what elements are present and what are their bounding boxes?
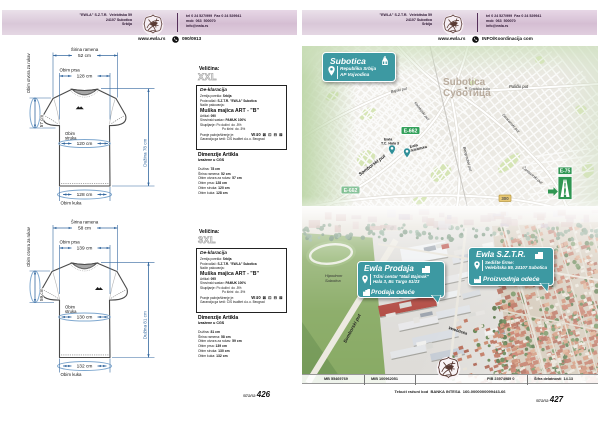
svg-text:Gradska kuća: Gradska kuća <box>469 87 490 91</box>
svg-text:E-662: E-662 <box>344 188 358 194</box>
svg-text:Kelebijski put: Kelebijski put <box>413 101 431 122</box>
svg-text:Palićki put: Palićki put <box>509 84 529 89</box>
svg-text:T.C. Hala 3: T.C. Hala 3 <box>381 142 399 146</box>
svg-text:Čantavirski put: Čantavirski put <box>521 165 544 186</box>
svg-text:Beogradski put: Beogradski put <box>462 146 473 172</box>
svg-text:Senćanski put: Senćanski put <box>501 113 521 134</box>
svg-text:E-75: E-75 <box>560 169 571 175</box>
svg-text:300: 300 <box>501 196 509 201</box>
svg-text:Somborski put: Somborski put <box>358 153 387 177</box>
svg-text:E-662: E-662 <box>404 129 418 135</box>
svg-text:Bajski put: Bajski put <box>390 86 408 94</box>
